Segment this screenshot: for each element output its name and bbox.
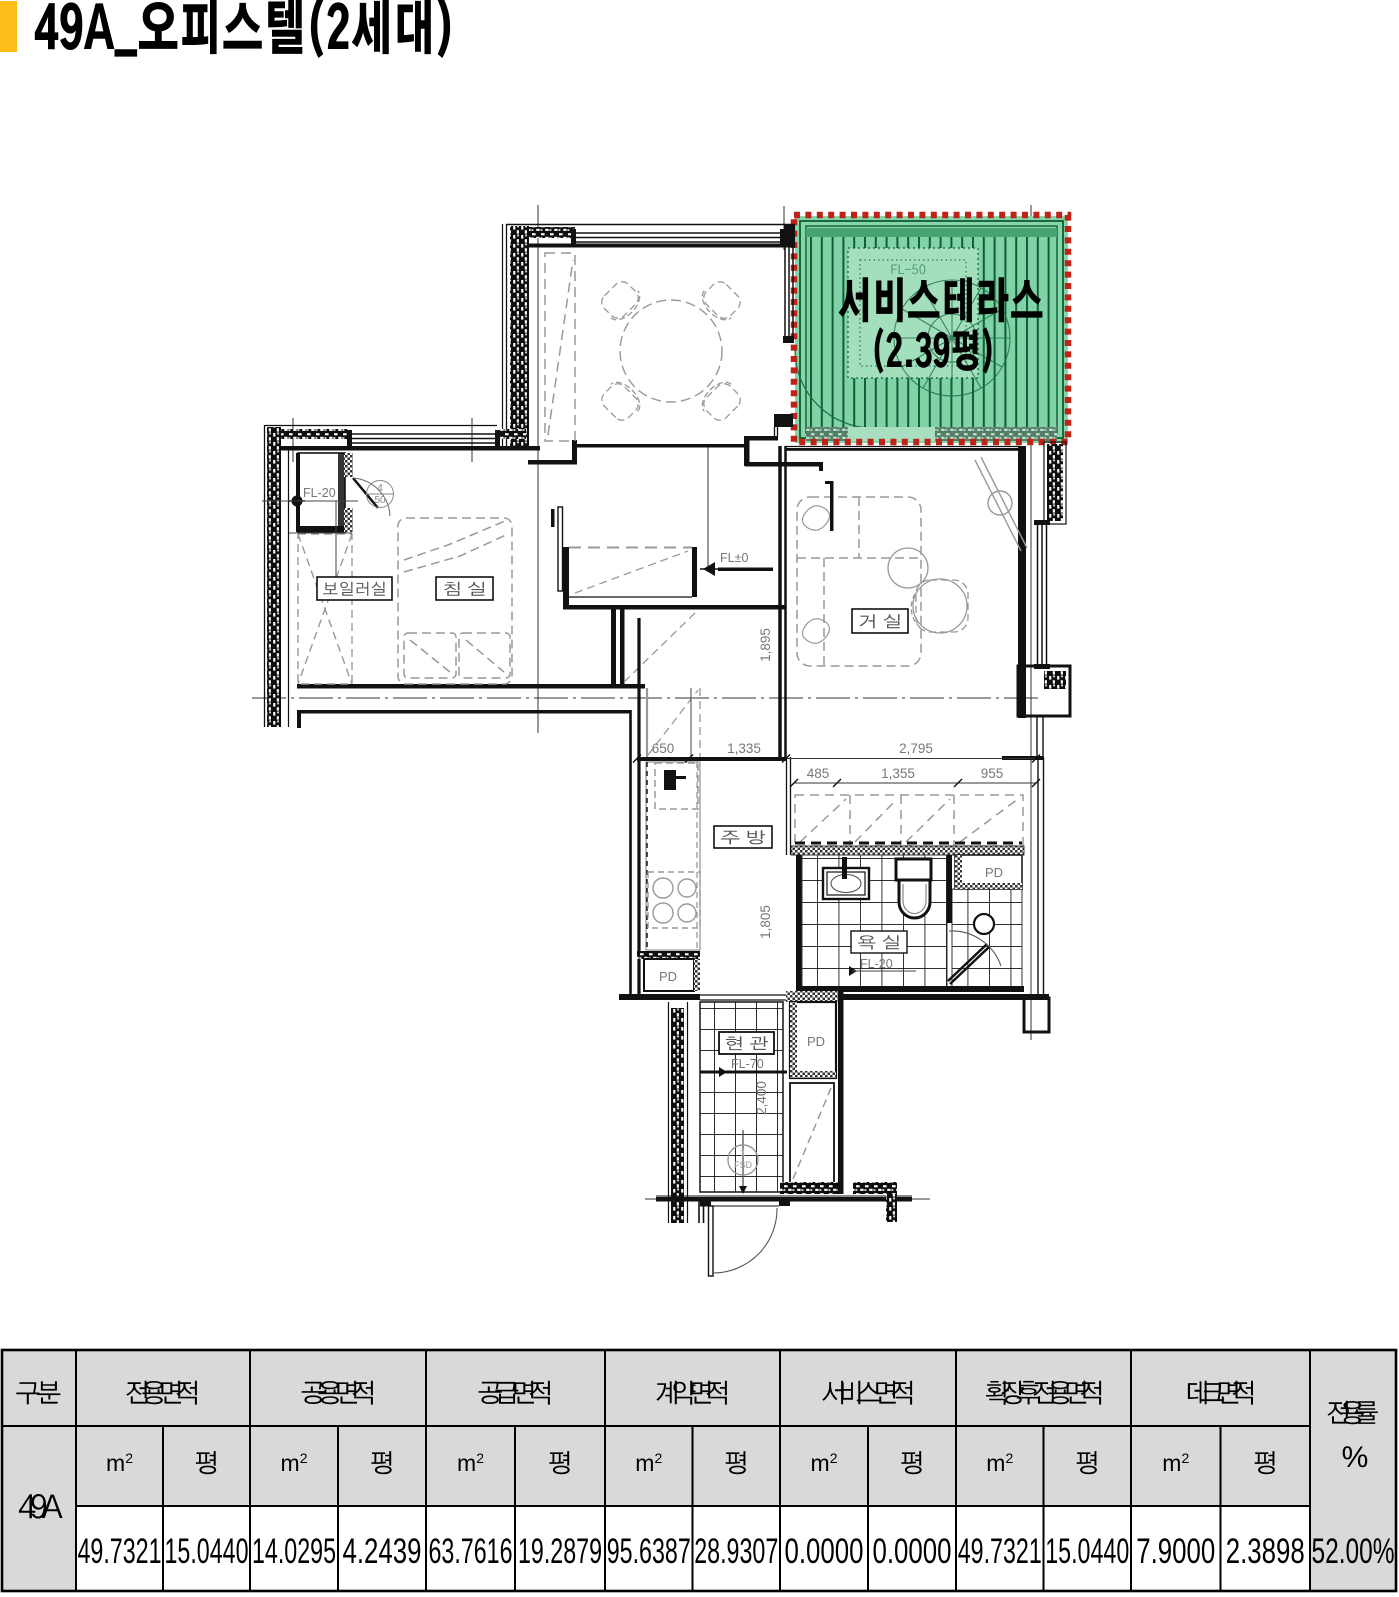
svg-text:2,795: 2,795 xyxy=(899,741,933,756)
svg-text:19.2879: 19.2879 xyxy=(518,1532,602,1571)
svg-text:28.9307: 28.9307 xyxy=(694,1532,778,1571)
svg-text:0.0000: 0.0000 xyxy=(873,1532,952,1571)
svg-text:PD: PD xyxy=(807,1034,825,1049)
svg-text:15.0440: 15.0440 xyxy=(165,1532,249,1571)
svg-text:PD: PD xyxy=(659,969,677,984)
svg-text:49.7321: 49.7321 xyxy=(958,1532,1042,1571)
svg-text:FSD: FSD xyxy=(734,1160,753,1170)
svg-text:FL±0: FL±0 xyxy=(720,551,748,565)
svg-text:50: 50 xyxy=(374,495,386,506)
svg-text:1,895: 1,895 xyxy=(758,628,773,662)
svg-text:15.0440: 15.0440 xyxy=(1045,1532,1129,1571)
svg-text:%: % xyxy=(1342,1441,1369,1474)
svg-text:7.9000: 7.9000 xyxy=(1136,1532,1215,1571)
svg-text:FL-20: FL-20 xyxy=(303,486,336,500)
svg-text:14.0295: 14.0295 xyxy=(252,1532,336,1571)
svg-text:955: 955 xyxy=(981,766,1004,781)
svg-text:650: 650 xyxy=(652,741,675,756)
svg-text:2,400: 2,400 xyxy=(754,1081,769,1115)
svg-text:1,355: 1,355 xyxy=(881,766,915,781)
svg-text:95.6387: 95.6387 xyxy=(607,1532,691,1571)
svg-text:2.3898: 2.3898 xyxy=(1226,1532,1305,1571)
svg-text:49.7321: 49.7321 xyxy=(78,1532,162,1571)
svg-text:1,805: 1,805 xyxy=(758,905,773,939)
svg-text:PD: PD xyxy=(985,865,1003,880)
svg-text:0.0000: 0.0000 xyxy=(785,1532,864,1571)
svg-text:1: 1 xyxy=(740,1148,745,1158)
svg-text:1,335: 1,335 xyxy=(727,741,761,756)
svg-text:FL-20: FL-20 xyxy=(860,957,893,971)
svg-text:4.2439: 4.2439 xyxy=(343,1532,422,1571)
svg-text:485: 485 xyxy=(807,766,830,781)
svg-text:63.7616: 63.7616 xyxy=(429,1532,513,1571)
svg-text:FL-70: FL-70 xyxy=(731,1057,764,1071)
svg-text:52.00%: 52.00% xyxy=(1312,1532,1395,1571)
svg-text:4: 4 xyxy=(377,483,383,494)
